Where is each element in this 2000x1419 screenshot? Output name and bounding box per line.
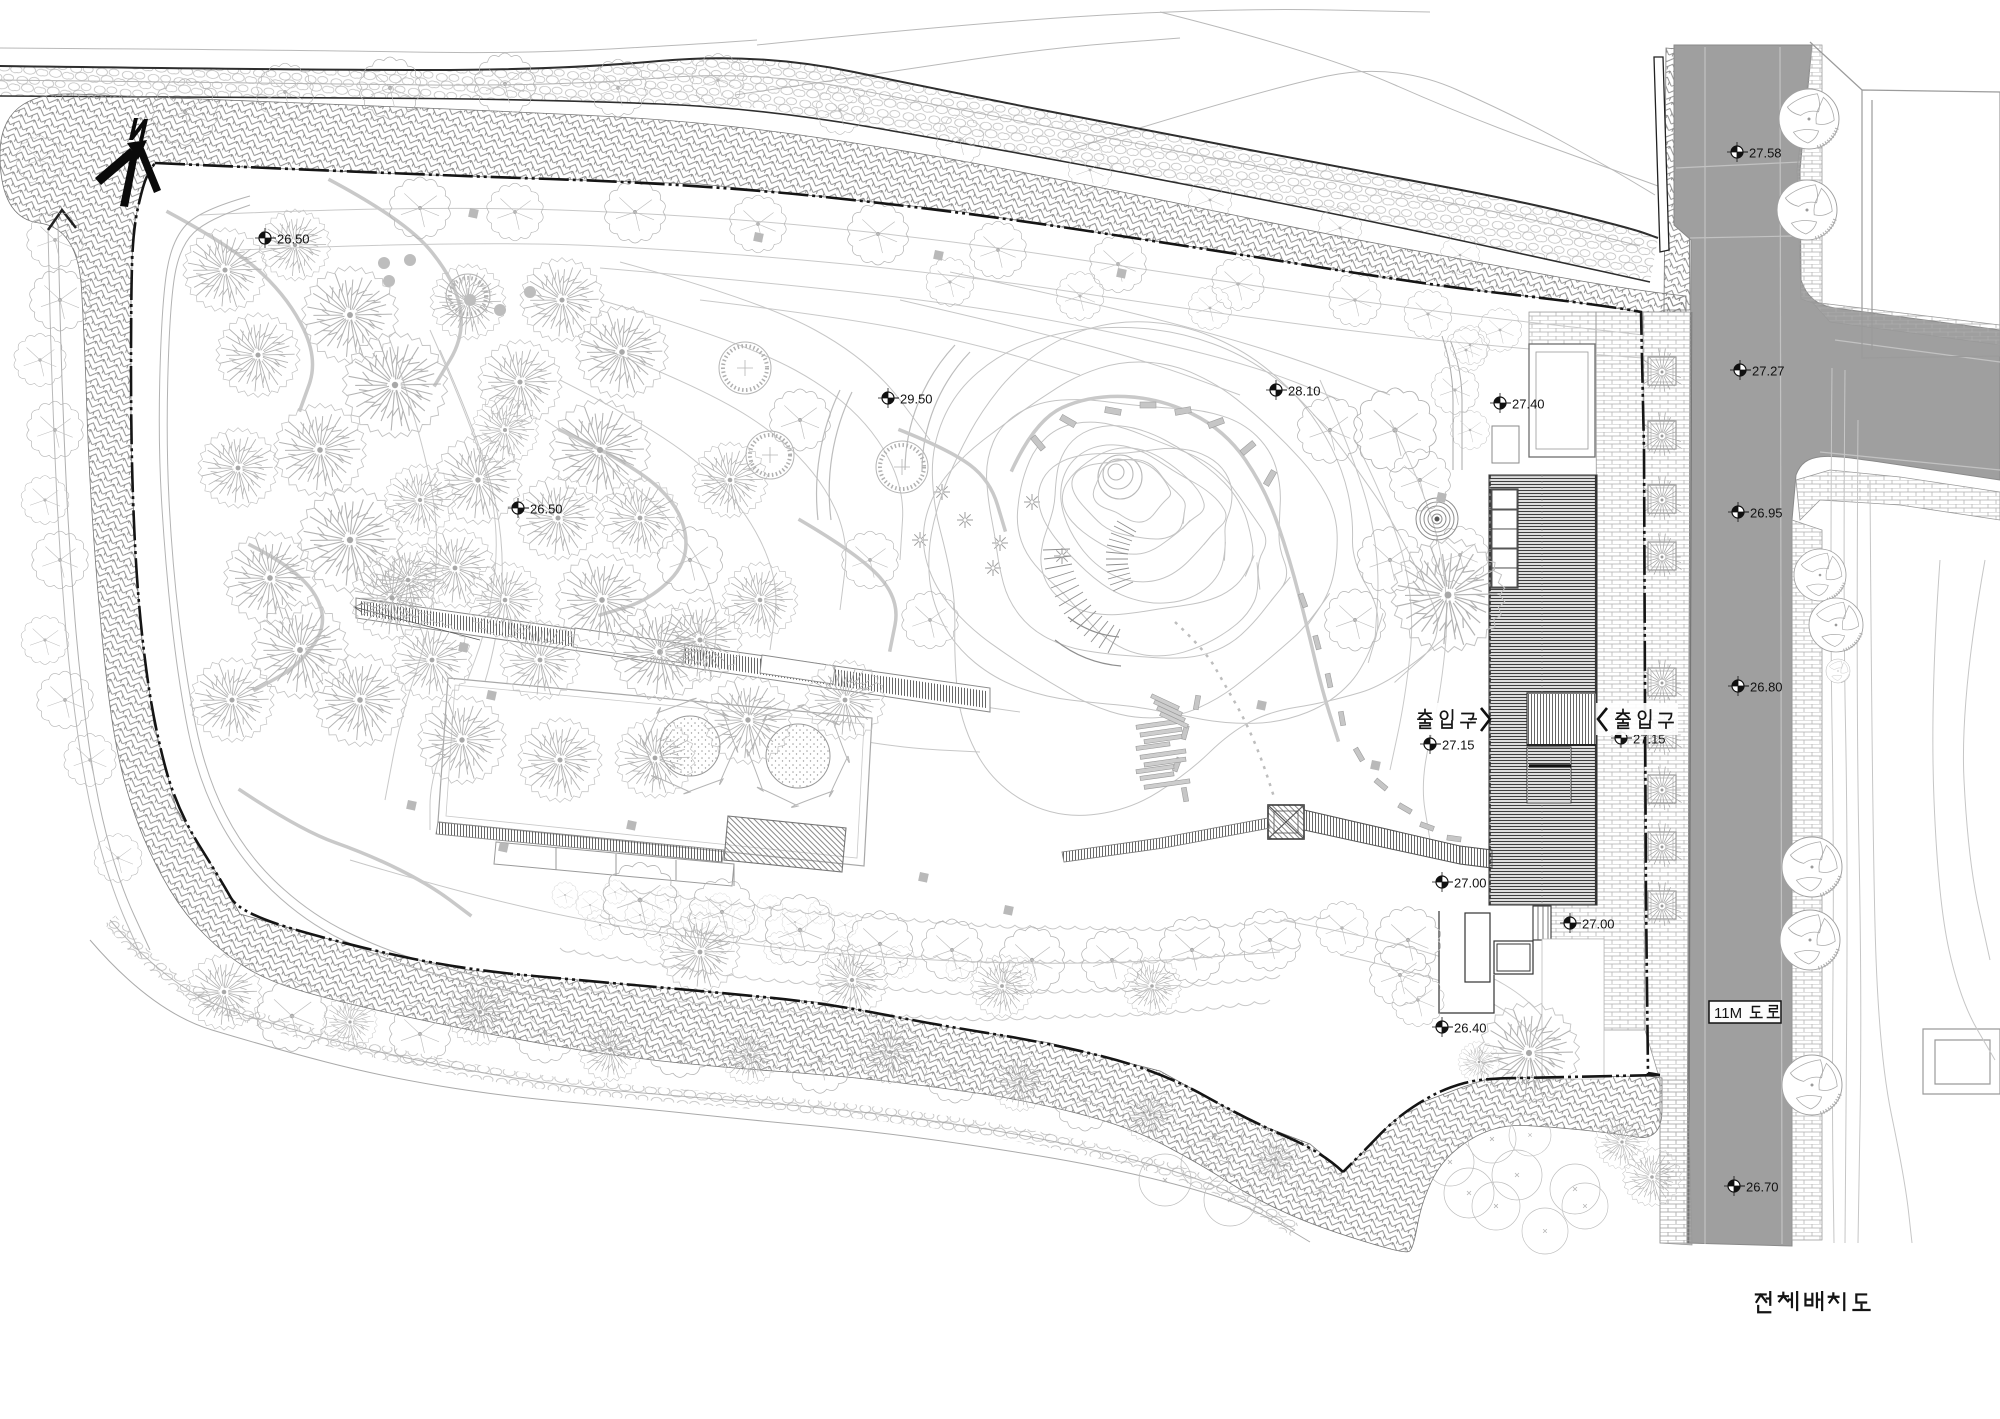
svg-text:26.50: 26.50 [530,502,563,517]
svg-text:27.15: 27.15 [1442,738,1475,753]
svg-text:26.50: 26.50 [277,232,310,247]
svg-text:11M: 11M [1714,1005,1742,1022]
svg-text:26.95: 26.95 [1750,506,1783,521]
svg-text:26.70: 26.70 [1746,1180,1779,1195]
svg-text:26.80: 26.80 [1750,680,1783,695]
svg-text:27.00: 27.00 [1582,917,1615,932]
svg-text:29.50: 29.50 [900,392,933,407]
svg-text:27.00: 27.00 [1454,876,1487,891]
svg-text:26.40: 26.40 [1454,1021,1487,1036]
svg-text:28.10: 28.10 [1288,384,1321,399]
svg-text:27.27: 27.27 [1752,364,1785,379]
svg-text:27.40: 27.40 [1512,397,1545,412]
svg-text:27.58: 27.58 [1749,146,1782,161]
